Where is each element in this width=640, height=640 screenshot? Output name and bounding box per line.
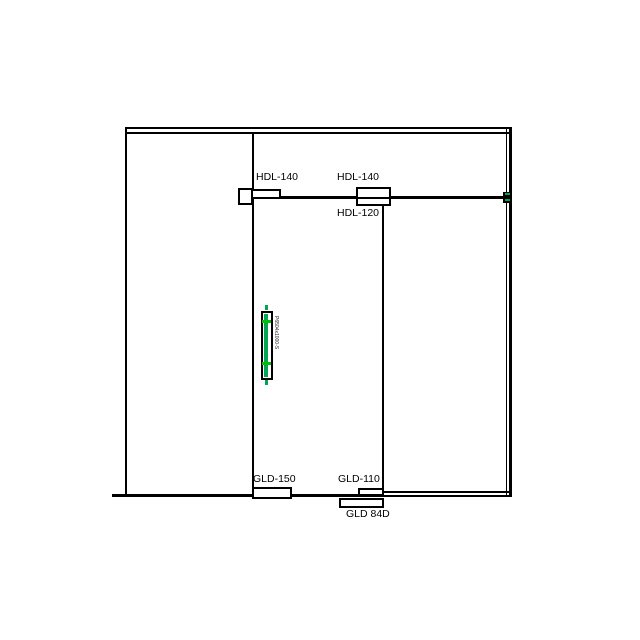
label-hdl140-mid: HDL-140 — [337, 171, 379, 183]
label-hdl120: HDL-120 — [337, 207, 379, 219]
floor-patch-right-fitting — [358, 488, 384, 496]
header-patch-mid-fitting — [356, 187, 391, 206]
left-wall-line — [125, 127, 127, 497]
handle-axis-dash-top — [265, 305, 268, 310]
handle-fixing-mark-top — [262, 320, 271, 323]
top-rail-lower-line — [125, 132, 512, 134]
label-gld110: GLD-110 — [338, 473, 380, 485]
floor-line — [112, 494, 384, 497]
label-hdl140-left: HDL-140 — [256, 171, 298, 183]
handle-axis-dash-bottom — [265, 380, 268, 385]
connector-green-tick — [505, 199, 510, 201]
floor-track-lower-line — [383, 495, 512, 497]
floor-track-upper-line — [383, 491, 512, 493]
handle-part-code: P6504x1000-S — [272, 316, 279, 378]
label-gld150: GLD-150 — [253, 473, 296, 485]
top-rail-upper-line — [125, 127, 512, 129]
wall-connector-fitting — [503, 192, 512, 203]
right-wall-inner-line — [506, 127, 507, 495]
connector-green-tick — [505, 193, 510, 195]
right-wall-outer-line — [509, 127, 512, 497]
floor-patch-left-fitting — [252, 487, 292, 499]
header-patch-left-arm — [251, 189, 281, 199]
drawing-canvas: HDL-140 HDL-140 HDL-120 P6504x1000-S GLD… — [0, 0, 640, 640]
label-gld84d: GLD 84D — [346, 508, 390, 520]
door-handle-green-bar — [264, 314, 268, 377]
door-right-edge-line — [382, 206, 384, 489]
handle-fixing-mark-bottom — [262, 362, 271, 365]
floor-closer-fitting — [339, 498, 384, 508]
header-patch-mid-divider — [358, 197, 389, 199]
